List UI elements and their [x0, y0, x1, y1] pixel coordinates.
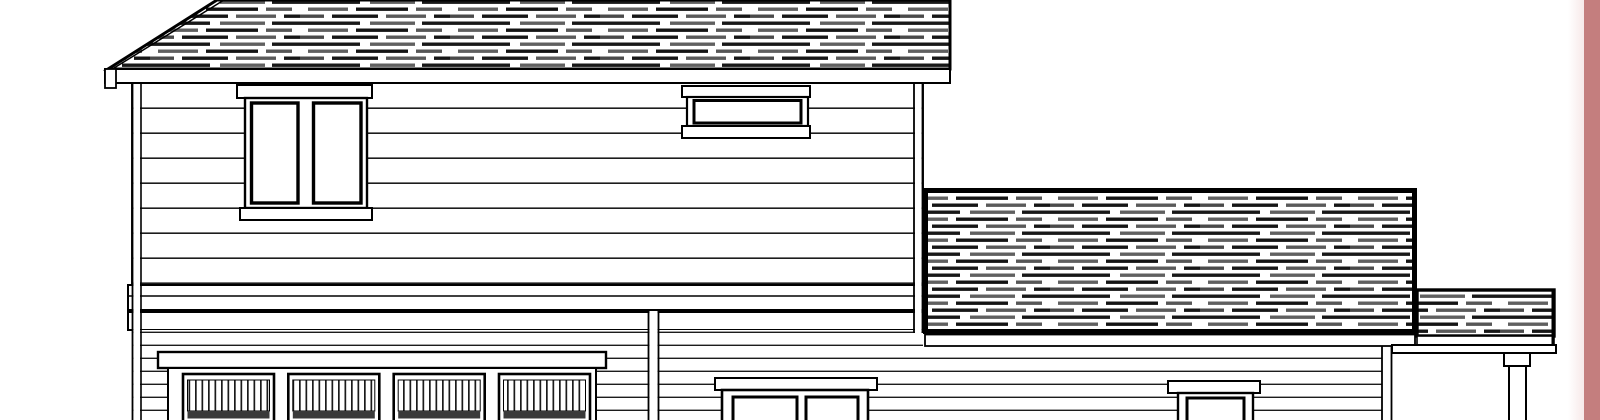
porch-roof-shingles — [1417, 290, 1554, 336]
window-pane — [694, 101, 801, 124]
window-header — [715, 378, 877, 390]
garage-door-panel-4 — [499, 374, 590, 420]
accent-stripe — [1584, 0, 1600, 420]
elevation-svg — [0, 0, 1600, 420]
window-pane-left — [252, 103, 299, 203]
window-header — [682, 86, 810, 97]
lower-middle-window — [715, 378, 877, 420]
right-wing-roof — [925, 191, 1415, 347]
upper-right-corner-board — [915, 84, 922, 333]
window-pane — [1187, 398, 1244, 420]
garage-door-panel-2 — [288, 374, 379, 420]
window-sill — [240, 208, 372, 220]
garage-door — [158, 352, 606, 420]
left-corner-board — [134, 84, 141, 420]
main-roof — [105, 0, 950, 88]
accent-stripe-fade — [1568, 0, 1584, 420]
fascia-end-cap — [105, 69, 116, 88]
upper-transom-window — [682, 86, 810, 138]
porch-beam — [1392, 345, 1556, 353]
right-roof-fascia — [925, 335, 1415, 347]
main-roof-fascia — [105, 69, 950, 83]
garage-entry-corner — [650, 311, 658, 420]
window-sill — [682, 126, 810, 138]
porch-post-capital — [1504, 353, 1530, 366]
garage-door-panel-3 — [394, 374, 485, 420]
window-pane-right — [314, 103, 362, 203]
right-corner-board — [1383, 346, 1391, 420]
main-roof-shingles — [108, 0, 950, 69]
garage-door-header — [158, 352, 606, 368]
right-wing-wall — [923, 346, 1392, 420]
window-pane-left — [733, 397, 797, 420]
floor-trim-band — [128, 285, 923, 330]
elevation-drawing — [0, 0, 1600, 420]
porch-roof-fascia — [1417, 336, 1554, 345]
page-edge-accent — [1568, 0, 1600, 420]
right-roof-shingles — [926, 191, 1415, 332]
window-header — [237, 85, 372, 98]
garage-door-panel-1 — [183, 374, 274, 420]
porch-post-shaft — [1509, 366, 1526, 420]
window-pane-right — [806, 397, 858, 420]
upper-left-window — [237, 85, 372, 220]
window-header — [1168, 381, 1260, 393]
lower-right-window — [1168, 381, 1260, 420]
right-wing-siding — [923, 346, 1382, 420]
